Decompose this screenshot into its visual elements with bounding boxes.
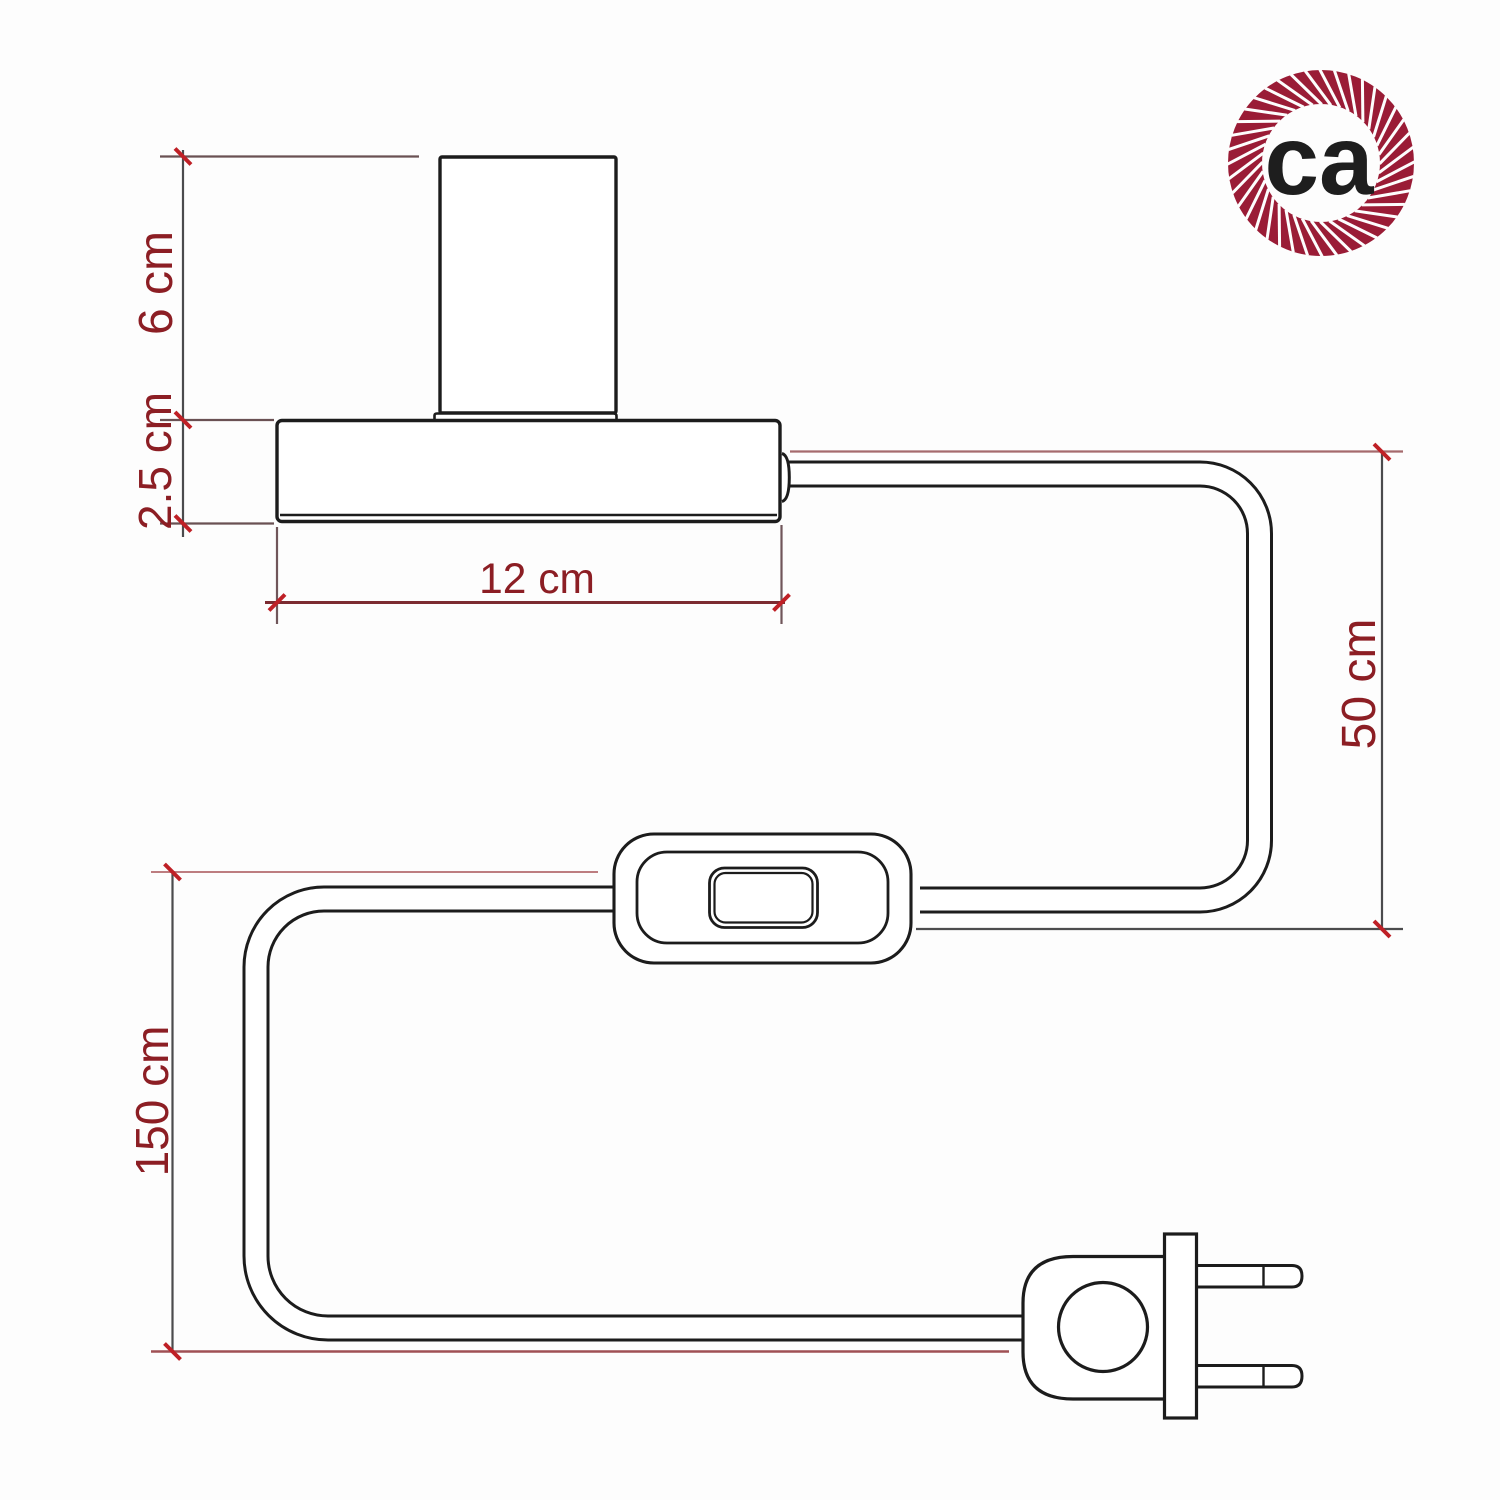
svg-text:6 cm: 6 cm	[130, 231, 183, 335]
svg-text:ca: ca	[1264, 105, 1375, 215]
svg-text:150 cm: 150 cm	[126, 1026, 178, 1177]
svg-text:2.5 cm: 2.5 cm	[129, 392, 181, 530]
svg-text:12 cm: 12 cm	[479, 556, 595, 603]
svg-text:50 cm: 50 cm	[1333, 619, 1386, 750]
